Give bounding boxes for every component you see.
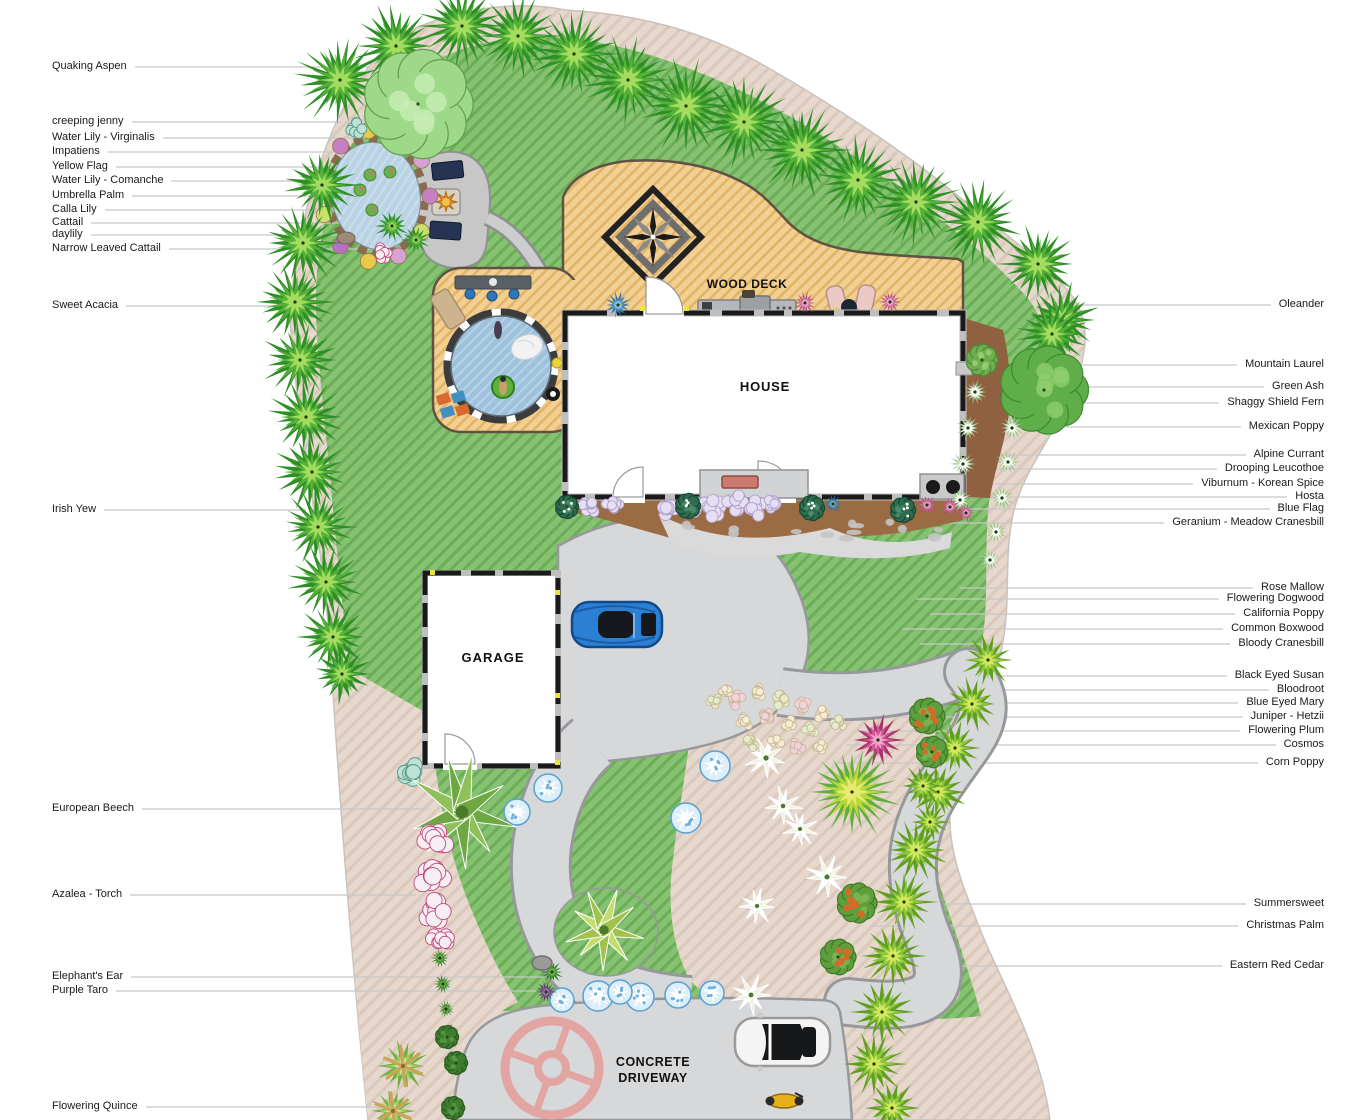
plant-label: Calla Lily: [52, 202, 97, 216]
orange-shrub-symbol: [917, 736, 948, 768]
tree-symbol: [967, 344, 998, 376]
garage-label: GARAGE: [461, 650, 524, 665]
hydrangea-symbol: [504, 799, 530, 825]
plant-label: Mexican Poppy: [1249, 419, 1324, 433]
plant-label: Shaggy Shield Fern: [1227, 395, 1324, 409]
plant-label: Cosmos: [1284, 737, 1324, 751]
plant-label: Impatiens: [52, 144, 100, 158]
hydrangea-symbol: [608, 980, 632, 1004]
plant-label: Quaking Aspen: [52, 59, 127, 73]
plant-label: Water Lily - Virginalis: [52, 130, 155, 144]
plant-label: Bloodroot: [1277, 682, 1324, 696]
tree-symbol: [436, 1025, 459, 1048]
house: HOUSE: [565, 277, 972, 503]
tree-symbol: [445, 1051, 468, 1074]
orange-shrub-symbol: [838, 883, 878, 923]
plant-label: Flowering Quince: [52, 1099, 138, 1113]
plant-label: Juniper - Hetzii: [1251, 709, 1324, 723]
orange-shrub-symbol: [910, 698, 945, 734]
driveway-label: CONCRETE: [616, 1055, 690, 1069]
plant-label: Drooping Leucothoe: [1225, 461, 1324, 475]
hydrangea-symbol: [700, 751, 730, 781]
swimmer: [494, 321, 502, 339]
groundcover-symbol: [759, 708, 774, 723]
plant-label: Black Eyed Susan: [1235, 668, 1324, 682]
plant-label: Eastern Red Cedar: [1230, 958, 1324, 972]
plant-label: Elephant's Ear: [52, 969, 123, 983]
tree-symbol: [556, 495, 579, 518]
hydrangea-symbol: [534, 774, 562, 802]
plant-label: Purple Taro: [52, 983, 108, 997]
tree-symbol: [442, 1096, 465, 1119]
tree-symbol: [800, 495, 825, 520]
garage: GARAGE: [425, 570, 560, 770]
house-label: HOUSE: [740, 379, 790, 394]
white-car: [735, 1012, 830, 1072]
plant-label: Water Lily - Comanche: [52, 173, 163, 187]
plant-label: Blue Flag: [1278, 501, 1324, 515]
plant-label: Summersweet: [1254, 896, 1324, 910]
plant-label: Yellow Flag: [52, 159, 108, 173]
plant-label: Flowering Dogwood: [1227, 591, 1324, 605]
plant-label: Umbrella Palm: [52, 188, 124, 202]
plant-label: Blue Eyed Mary: [1246, 695, 1324, 709]
plant-label: California Poppy: [1243, 606, 1324, 620]
plant-label: Oleander: [1279, 297, 1324, 311]
plant-label: Flowering Plum: [1248, 723, 1324, 737]
plant-label: European Beech: [52, 801, 134, 815]
hydrangea-symbol: [665, 982, 691, 1008]
pool-float: [492, 376, 514, 398]
plant-label: Corn Poppy: [1266, 755, 1324, 769]
hydrangea-symbol: [700, 981, 724, 1005]
plant-label: Common Boxwood: [1231, 621, 1324, 635]
blue-car: [572, 602, 662, 647]
plant-label: Viburnum - Korean Spice: [1201, 476, 1324, 490]
site-plan-svg: CONCRETE DRIVEWAY WOOD D: [0, 0, 1360, 1120]
plant-label: Bloody Cranesbill: [1238, 636, 1324, 650]
plant-label: Irish Yew: [52, 502, 96, 516]
plant-label: Christmas Palm: [1246, 918, 1324, 932]
boulder: [532, 956, 552, 970]
plant-label: Azalea - Torch: [52, 887, 122, 901]
plant-label: Mountain Laurel: [1245, 357, 1324, 371]
aspen-symbol: [365, 49, 473, 158]
hydrangea-symbol: [671, 803, 701, 833]
driveway-label: DRIVEWAY: [618, 1071, 688, 1085]
landscape-plan-canvas: CONCRETE DRIVEWAY WOOD D: [0, 0, 1360, 1120]
plant-label: Narrow Leaved Cattail: [52, 241, 161, 255]
plant-label: Sweet Acacia: [52, 298, 118, 312]
plant-label: Green Ash: [1272, 379, 1324, 393]
plant-label: Alpine Currant: [1254, 447, 1324, 461]
tree-symbol: [676, 493, 701, 518]
tree-symbol: [891, 497, 916, 522]
plant-label: Geranium - Meadow Cranesbill: [1172, 515, 1324, 529]
front-porch: [700, 470, 808, 498]
porch-bench: [722, 476, 758, 488]
patio-bench: [429, 221, 461, 240]
patio-bench: [431, 160, 464, 180]
wood-deck-label: WOOD DECK: [707, 277, 788, 291]
plant-label: daylily: [52, 227, 83, 241]
plant-label: creeping jenny: [52, 114, 124, 128]
orange-shrub-symbol: [821, 939, 856, 975]
grill-icon: [742, 290, 755, 298]
